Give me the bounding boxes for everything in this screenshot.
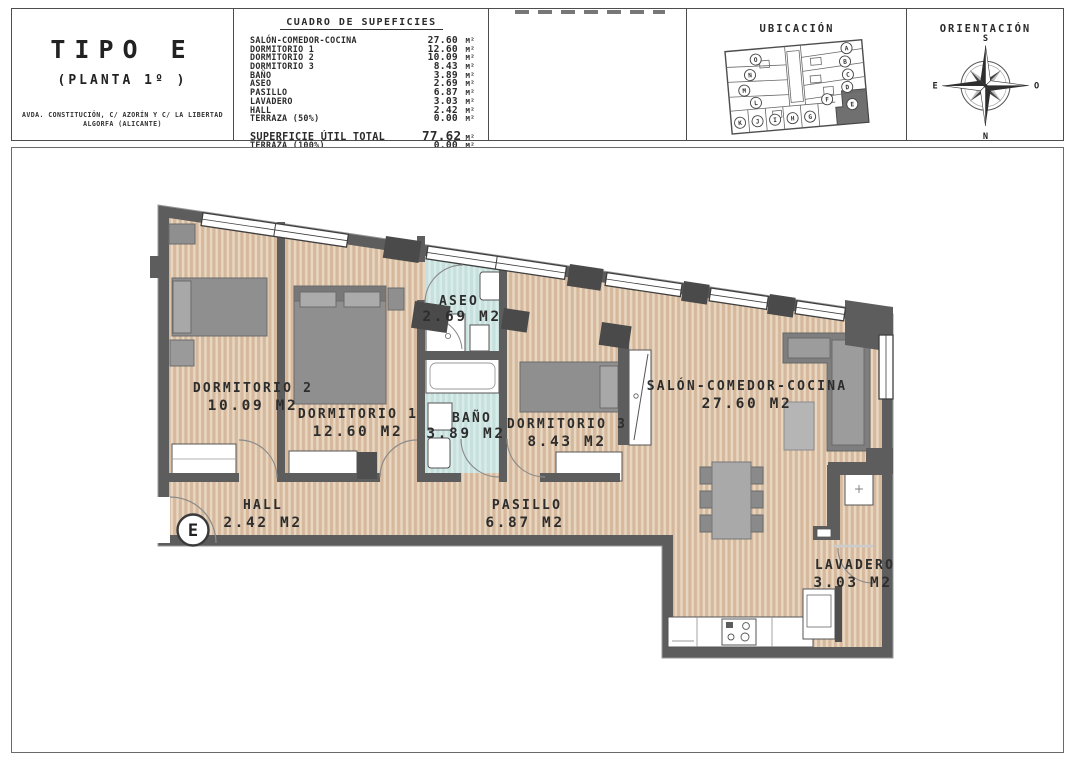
aseo-sink	[470, 325, 489, 351]
dorm2-area: 10.09 M2	[208, 398, 299, 414]
compass-north-label: N	[983, 132, 988, 139]
bano-toilet	[428, 438, 450, 468]
wood-floor	[169, 218, 882, 647]
table-row: ASEO2.69M²	[250, 78, 475, 87]
salon-label: SALÓN-COMEDOR-COCINA	[647, 378, 848, 394]
dorm3-wardrobe-leaf	[629, 350, 651, 445]
orientacion-panel: ORIENTACIÓN S N	[906, 9, 1064, 140]
title-block-panel: TIPO E (PLANTA 1º ) AVDA. CONSTITUCIÓN, …	[12, 9, 233, 140]
table-row: DORMITORIO 38.43M²	[250, 61, 475, 70]
surface-table: SALÓN-COMEDOR-COCINA27.60M² DORMITORIO 1…	[250, 35, 475, 149]
table-row: BAÑO3.89M²	[250, 70, 475, 79]
washing-machine	[803, 586, 842, 642]
compass-rose-icon: S N E O	[907, 31, 1064, 139]
ubicacion-title: UBICACIÓN	[687, 23, 907, 35]
table-row: DORMITORIO 210.09M²	[250, 52, 475, 61]
dorm1-area: 12.60 M2	[313, 424, 404, 440]
floor-plan-sheet: TIPO E (PLANTA 1º ) AVDA. CONSTITUCIÓN, …	[0, 0, 1080, 763]
dorm3-pillow	[600, 366, 618, 408]
address-line-2: ALGORFA (ALICANTE)	[12, 120, 233, 129]
table-total-row: SUPERFICIE ÚTIL TOTAL77.62M²	[250, 128, 475, 140]
empty-panel	[488, 9, 687, 140]
plan-type-title: TIPO E	[12, 35, 233, 64]
dorm2-pillow	[173, 281, 191, 333]
dorm3-label: DORMITORIO 3	[507, 417, 627, 432]
floor-label: (PLANTA 1º )	[12, 73, 233, 88]
dorm2-nightstand	[170, 340, 194, 366]
hall-area: 2.42 M2	[223, 515, 302, 531]
surface-table-title: CUADRO DE SUPEFICIES	[234, 17, 489, 28]
dorm1-nightstand	[388, 288, 404, 310]
site-location-map-icon: O N M L A B C D F E K J I H G	[701, 35, 893, 137]
bano-label: BAÑO	[452, 410, 492, 426]
table-row: DORMITORIO 112.60M²	[250, 44, 475, 53]
table-row: TERRAZA (50%)0.00M²	[250, 113, 475, 122]
window-salon-east	[879, 335, 893, 399]
dorm3-area: 8.43 M2	[527, 434, 606, 450]
lavadero-heater	[845, 473, 873, 505]
entrance-letter: E	[188, 521, 198, 541]
surface-table-panel: CUADRO DE SUPEFICIES SALÓN-COMEDOR-COCIN…	[233, 9, 489, 140]
dorm1-pillow-right	[344, 292, 380, 307]
pasillo-label: PASILLO	[492, 498, 562, 513]
table-row: HALL2.42M²	[250, 105, 475, 114]
dorm1-pillow-left	[300, 292, 336, 307]
entry-door-opening	[156, 497, 170, 543]
bano-area: 3.89 M2	[426, 426, 505, 442]
header-band: TIPO E (PLANTA 1º ) AVDA. CONSTITUCIÓN, …	[11, 8, 1064, 141]
ubicacion-panel: UBICACIÓN	[686, 9, 907, 140]
entrance-mark: E	[178, 515, 209, 546]
salon-area: 27.60 M2	[702, 396, 793, 412]
lavadero-area: 3.03 M2	[813, 575, 892, 591]
table-row: SALÓN-COMEDOR-COCINA27.60M²	[250, 35, 475, 44]
dorm1-label: DORMITORIO 1	[298, 407, 418, 422]
aseo-area: 2.69 M2	[422, 309, 501, 325]
table-row: LAVADERO3.03M²	[250, 96, 475, 105]
lavadero-wall-niche	[817, 529, 831, 537]
pasillo-area: 6.87 M2	[485, 515, 564, 531]
apartment-floor-plan: E DORMITORIO 2 10.09 M2 DORMITORIO 1 12.…	[11, 147, 1062, 751]
table-row: PASILLO6.87M²	[250, 87, 475, 96]
hall-label: HALL	[243, 498, 283, 513]
dorm2-shelf	[169, 224, 195, 244]
scan-artifact	[515, 10, 665, 14]
lavadero-label: LAVADERO	[815, 558, 895, 573]
dorm2-label: DORMITORIO 2	[193, 381, 313, 396]
dining-table-set	[700, 462, 763, 539]
kitchen-stove	[722, 619, 756, 645]
compass-south-label: S	[983, 34, 988, 44]
compass-east-label: E	[932, 82, 937, 92]
address-line-1: AVDA. CONSTITUCIÓN, C/ AZORÍN Y C/ LA LI…	[12, 111, 233, 120]
aseo-toilet	[480, 272, 501, 300]
aseo-label: ASEO	[439, 294, 479, 309]
bano-bathtub	[426, 359, 499, 393]
project-address: AVDA. CONSTITUCIÓN, C/ AZORÍN Y C/ LA LI…	[12, 111, 233, 129]
compass-west-label: O	[1034, 82, 1039, 92]
